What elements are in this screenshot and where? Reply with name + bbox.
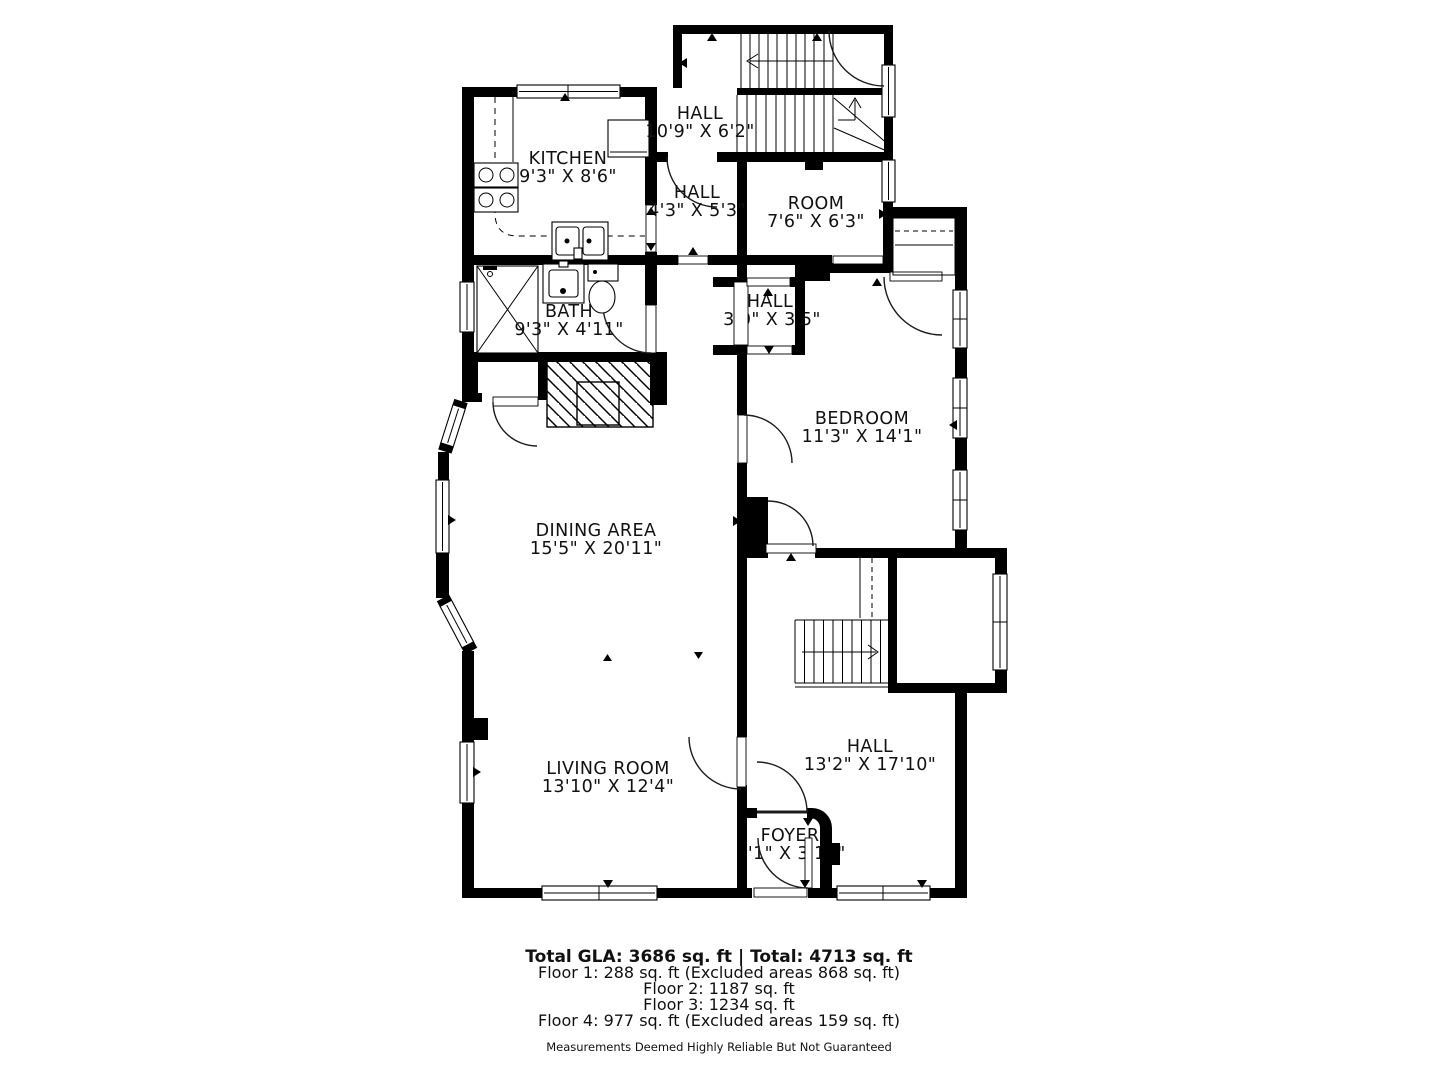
disclaimer-text: Measurements Deemed Highly Reliable But … <box>546 1040 892 1054</box>
room-label-room: ROOM <box>788 194 844 214</box>
floor-4-text: Floor 4: 977 sq. ft (Excluded areas 159 … <box>538 1011 900 1030</box>
floor-plan: HALL 3'0" X 3'5" FOYER 4'1" X 3'10" <box>0 0 1440 1080</box>
door-arc <box>829 31 884 86</box>
door-arc <box>493 402 537 446</box>
room-dims-hall-mid: 4'3" X 5'3" <box>648 201 746 221</box>
window <box>953 290 967 348</box>
room-dims-bedroom: 11'3" X 14'1" <box>802 427 923 447</box>
window <box>953 470 967 530</box>
room-dims-bath: 9'3" X 4'11" <box>514 320 623 340</box>
closet <box>893 218 955 275</box>
stove-icon <box>474 163 518 212</box>
room-label-bath: BATH <box>545 302 593 322</box>
refrigerator-icon <box>608 120 649 157</box>
room-label-hall-top: HALL <box>677 104 723 124</box>
room-dims-dining: 15'5" X 20'11" <box>530 539 662 559</box>
floor-plan-page: HALL 3'0" X 3'5" FOYER 4'1" X 3'10" <box>0 0 1440 1080</box>
door-arc <box>744 415 792 463</box>
room-label-kitchen: KITCHEN <box>529 149 608 169</box>
window <box>993 574 1007 670</box>
room-labels: HALL 10'9" X 6'2" KITCHEN 9'3" X 8'6" HA… <box>514 104 936 797</box>
room-dims-living: 13'10" X 12'4" <box>542 777 674 797</box>
bay-window <box>438 399 467 454</box>
bay-window <box>437 595 477 655</box>
door-arc <box>689 737 741 789</box>
window <box>460 742 474 803</box>
room-label-hall-bottom: HALL <box>847 737 893 757</box>
door-arc <box>768 501 813 546</box>
room-label-hall-mid: HALL <box>674 183 720 203</box>
window <box>436 480 449 553</box>
staircase-bottom <box>795 558 890 687</box>
window <box>460 282 474 332</box>
room-dims-hall-top: 10'9" X 6'2" <box>645 122 754 142</box>
kitchen-sink-icon <box>552 222 608 260</box>
window <box>837 886 930 900</box>
window <box>953 378 967 438</box>
door-arc <box>757 762 807 812</box>
summary-block: Total GLA: 3686 sq. ft | Total: 4713 sq.… <box>525 947 912 1054</box>
room-label-bedroom: BEDROOM <box>815 409 909 429</box>
room-label-dining: DINING AREA <box>536 521 657 541</box>
window <box>882 65 895 117</box>
window <box>542 886 657 900</box>
fireplace-hatch <box>547 360 653 427</box>
window <box>517 85 620 98</box>
room-dims-kitchen: 9'3" X 8'6" <box>519 167 617 187</box>
bath-sink-icon <box>543 261 584 303</box>
room-dims-hall-bottom: 13'2" X 17'10" <box>804 755 936 775</box>
door-arc <box>884 277 942 335</box>
room-label-living: LIVING ROOM <box>546 759 669 779</box>
window <box>882 160 895 202</box>
room-dims-room: 7'6" X 6'3" <box>767 212 865 232</box>
